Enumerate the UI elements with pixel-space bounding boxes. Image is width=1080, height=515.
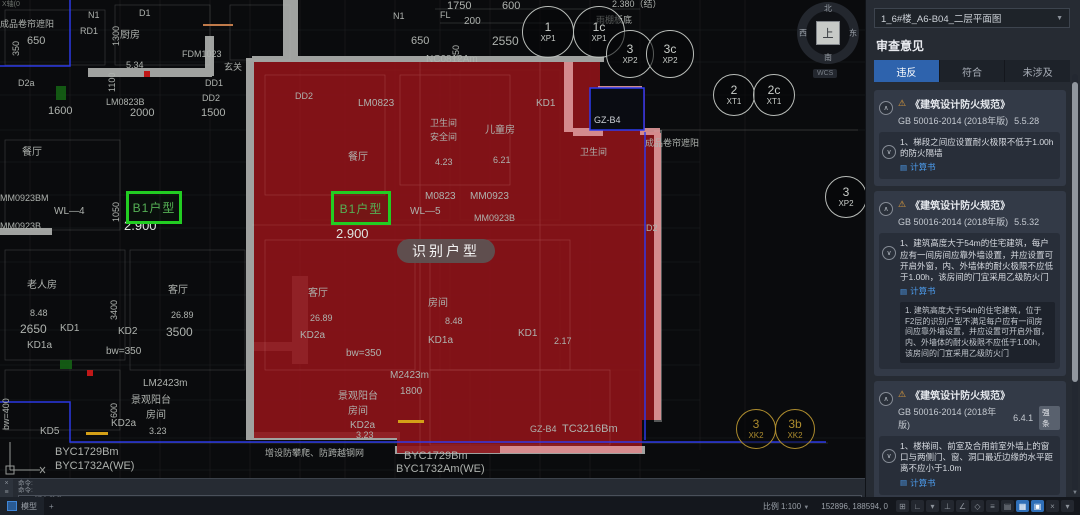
axis-bubble: 2XT1: [713, 74, 755, 116]
axis-ref: XT1: [727, 98, 742, 106]
cad-text: 客厅: [168, 286, 188, 296]
add-layout-button[interactable]: +: [44, 502, 59, 511]
violation-detail: 1. 建筑高度大于54m的住宅建筑，位于F2层的识别户型不满足每户应有一间房间应…: [900, 302, 1055, 363]
annotation-visibility-icon[interactable]: ▦: [1016, 500, 1029, 512]
cad-text: RD1: [80, 27, 98, 36]
cad-text: 1300: [112, 26, 121, 46]
violation-item: ∨1、楼梯间、前室及合用前室外墙上的窗口与两侧门、窗、洞口最近边缘的水平距离不应…: [879, 436, 1060, 495]
chevron-up-circle-icon[interactable]: ∧: [879, 202, 893, 216]
drawing-selector-value: 1_6#楼_A6-B04_二层平面图: [881, 11, 1001, 25]
snap-icon[interactable]: ∟: [911, 500, 924, 512]
standard-code-row: GB 50016-2014 (2018年版)5.5.32: [898, 215, 1060, 228]
compass-south-label: 南: [824, 52, 832, 63]
cad-viewport[interactable]: X轴(0成品卷帘遮阳650350N1RD1D1厨房5.34FDM1023玄关DD…: [0, 0, 865, 478]
review-card-header-text: ⚠《建筑设计防火规范》GB 50016-2014 (2018年版)6.4.1强条: [898, 387, 1060, 431]
cad-text: BYC1732A(WE): [55, 461, 134, 472]
cad-text: 厨房: [120, 31, 140, 41]
cad-text: BYC1729Bm: [55, 447, 119, 458]
review-card-header-text: ⚠《建筑设计防火规范》GB 50016-2014 (2018年版)5.5.28: [898, 96, 1060, 127]
violation-item: ∨1、建筑高度大于54m的住宅建筑，每户应有一间房间应靠外墙设置，并应设置可开启…: [879, 233, 1060, 369]
cursor-coordinates: 152896, 188594, 0: [821, 502, 888, 511]
lineweight-icon[interactable]: ≡: [986, 500, 999, 512]
axis-number: 1c: [593, 21, 606, 33]
close-icon[interactable]: ×: [4, 480, 8, 487]
cad-text: 安全间: [430, 133, 457, 142]
cad-text: 房间: [146, 411, 166, 421]
cad-text: MM0923B: [0, 222, 41, 231]
axis-bubble: 3XP2: [825, 176, 865, 218]
cad-text: 3400: [110, 300, 119, 320]
review-card-header[interactable]: ∧⚠《建筑设计防火规范》GB 50016-2014 (2018年版)5.5.28: [879, 96, 1060, 127]
status-toggle-group: ⊞∟▾⊥∠◇≡▤▦▣×▾: [896, 500, 1074, 512]
cad-text: N1: [88, 11, 100, 20]
review-card: ∧⚠《建筑设计防火规范》GB 50016-2014 (2018年版)5.5.28…: [874, 90, 1066, 186]
cad-text: 1750: [447, 1, 471, 12]
tools-icon[interactable]: ≡: [4, 489, 8, 496]
cad-text: 餐厅: [22, 148, 42, 158]
cad-text: 房间: [428, 299, 448, 309]
cad-text: LM0823: [358, 99, 394, 109]
calc-report-link[interactable]: 计算书: [910, 477, 936, 489]
cad-text: bw=350: [106, 347, 141, 357]
calc-report-row: ▤计算书: [900, 161, 1055, 173]
cad-text: 增设防攀爬、防跨越钢网: [265, 449, 364, 458]
model-tab-label: 模型: [21, 501, 37, 512]
cad-text: 1800: [400, 387, 422, 397]
warning-icon: ⚠: [898, 199, 906, 210]
cad-text: MM0923BM: [0, 194, 49, 203]
cad-text: 8.48: [445, 317, 463, 326]
cad-text: bw=400: [2, 398, 11, 430]
chevron-down-icon: ▼: [803, 505, 809, 511]
axis-bubble: 1XP1: [522, 6, 574, 58]
cad-text: M2423m: [390, 371, 429, 381]
standard-title-row: ⚠《建筑设计防火规范》: [898, 96, 1060, 111]
violation-text: 1、建筑高度大于54m的住宅建筑，每户应有一间房间应靠外墙设置，并应设置可开启外…: [900, 238, 1055, 283]
axis-number: 3: [627, 43, 634, 55]
chevron-up-circle-icon[interactable]: ∧: [879, 392, 893, 406]
cad-text: N1: [393, 12, 405, 21]
cad-text: DD2: [295, 92, 313, 101]
cad-text: KD1: [536, 99, 555, 109]
cad-text: DD2: [202, 94, 220, 103]
violation-item-body: 1、楼梯间、前室及合用前室外墙上的窗口与两侧门、窗、洞口最近边缘的水平距离不应小…: [900, 441, 1055, 489]
cad-text: LM2423m: [143, 379, 187, 389]
axis-ref: XP2: [662, 57, 677, 65]
ortho-icon[interactable]: ⊥: [941, 500, 954, 512]
axis-number: 3b: [788, 418, 801, 430]
cad-text: 1600: [48, 106, 72, 117]
command-history-line: 命令:: [18, 480, 862, 487]
cad-text: KD2: [118, 327, 137, 337]
standard-title: 《建筑设计防火规范》: [910, 197, 1010, 212]
recognized-unit-label: 识别户型: [397, 239, 495, 263]
cad-text: KD1a: [27, 341, 52, 351]
selection-cycling-icon[interactable]: ▤: [1001, 500, 1014, 512]
cad-text: WL—5: [410, 207, 441, 217]
chevron-up-circle-icon[interactable]: ∧: [879, 101, 893, 115]
cad-text: KD5: [40, 427, 59, 437]
review-card-header[interactable]: ∧⚠《建筑设计防火规范》GB 50016-2014 (2018年版)6.4.1强…: [879, 387, 1060, 431]
cad-text: LM0823B: [106, 98, 145, 107]
scrollbar-thumb[interactable]: [1072, 82, 1078, 382]
review-card-header-text: ⚠《建筑设计防火规范》GB 50016-2014 (2018年版)5.5.32: [898, 197, 1060, 228]
panel-scrollbar[interactable]: [1072, 74, 1078, 491]
chevron-down-circle-icon[interactable]: ∨: [882, 246, 896, 260]
calc-report-link[interactable]: 计算书: [910, 161, 936, 173]
clause-number: 5.5.32: [1014, 217, 1039, 227]
unit-type-label: B1户型: [133, 199, 176, 216]
review-panel: 1_6#楼_A6-B04_二层平面图 ▼ 审查意见 违反符合未涉及 ∧⚠《建筑设…: [865, 0, 1080, 497]
cad-text: 350: [12, 41, 21, 56]
axis-number: 3: [843, 186, 850, 198]
tab-not-involved[interactable]: 未涉及: [1005, 60, 1070, 82]
cad-text: 8.48: [30, 309, 48, 318]
cad-text: 26.89: [310, 314, 333, 323]
standard-title: 《建筑设计防火规范》: [910, 96, 1010, 111]
grid-settings-caret-icon[interactable]: ▾: [926, 500, 939, 512]
cad-text: 6.21: [493, 156, 511, 165]
cad-text: 3.23: [356, 431, 374, 440]
compass-north-label: 北: [824, 3, 832, 14]
compass-east-label: 东: [849, 28, 857, 39]
cad-text: KD1: [518, 329, 537, 339]
warning-icon: ⚠: [898, 98, 906, 109]
review-card: ∧⚠《建筑设计防火规范》GB 50016-2014 (2018年版)6.4.1强…: [874, 381, 1066, 497]
workspace-icon[interactable]: ▣: [1031, 500, 1044, 512]
cad-text: 房间: [348, 407, 368, 417]
panel-title: 审查意见: [876, 37, 1070, 54]
model-space-icon: [7, 501, 17, 511]
cad-text: 景观阳台: [338, 392, 378, 402]
axis-number: 2: [731, 84, 738, 96]
standard-title: 《建筑设计防火规范》: [910, 387, 1010, 402]
cad-text: 600: [502, 1, 520, 12]
cad-text: 2.17: [554, 337, 572, 346]
violation-text: 1、楼梯间、前室及合用前室外墙上的窗口与两侧门、窗、洞口最近边缘的水平距离不应小…: [900, 441, 1055, 475]
cad-text: 3.23: [149, 427, 167, 436]
cad-text: BYC1732Am(WE): [396, 464, 485, 475]
clause-number: 6.4.1: [1013, 413, 1033, 423]
standard-title-row: ⚠《建筑设计防火规范》: [898, 387, 1060, 402]
cad-text: MM0923B: [474, 214, 515, 223]
unit-type-box[interactable]: B1户型: [331, 191, 391, 225]
axis-number: 3c: [664, 43, 677, 55]
cad-text: FDM1023: [182, 50, 222, 59]
clause-number: 5.5.28: [1014, 116, 1039, 126]
cad-text: WL—4: [54, 207, 85, 217]
standard-code: GB 50016-2014 (2018年版): [898, 215, 1008, 228]
cad-text: 1100: [108, 73, 117, 92]
cad-text: 200: [464, 17, 481, 27]
unit-type-label: B1户型: [340, 200, 383, 217]
cad-text: MM0923: [470, 192, 509, 202]
app-window: X轴(0成品卷帘遮阳650350N1RD1D1厨房5.34FDM1023玄关DD…: [0, 0, 1080, 515]
compass-west-label: 西: [799, 28, 807, 39]
axis-ref: XK2: [787, 432, 802, 440]
axis-ref: XP2: [838, 200, 853, 208]
customize-caret-icon[interactable]: ▾: [1061, 500, 1074, 512]
calc-report-row: ▤计算书: [900, 285, 1055, 297]
cad-text: D2a: [18, 79, 35, 88]
cad-text: 650: [411, 36, 429, 47]
cad-text: 650: [27, 36, 45, 47]
cad-text: 儿童房: [485, 126, 515, 136]
chevron-down-circle-icon[interactable]: ∨: [882, 449, 896, 463]
axis-bubble: 3XK2: [736, 409, 776, 449]
standard-code: GB 50016-2014 (2018年版): [898, 405, 1007, 431]
model-tab[interactable]: 模型: [0, 497, 44, 515]
axis-number: 3: [753, 418, 760, 430]
tab-compliant[interactable]: 符合: [940, 60, 1006, 82]
review-list: ∧⚠《建筑设计防火规范》GB 50016-2014 (2018年版)5.5.28…: [874, 90, 1066, 497]
axis-bubble: 3cXP2: [646, 30, 694, 78]
cad-text: KD2a: [300, 331, 325, 341]
cad-text: 卫生间: [580, 148, 607, 157]
cad-text: 2650: [20, 323, 47, 335]
violation-item-body: 1、建筑高度大于54m的住宅建筑，每户应有一间房间应靠外墙设置，并应设置可开启外…: [900, 238, 1055, 363]
cad-text: 景观阳台: [131, 396, 171, 406]
cad-text: bw=350: [346, 349, 381, 359]
axis-ref: XP1: [591, 35, 606, 43]
cad-text: X轴(0: [2, 1, 20, 8]
cad-text: 1500: [201, 108, 225, 119]
violation-text: 1、梯段之间应设置耐火极限不低于1.00h的防火隔墙: [900, 137, 1055, 159]
grid-icon[interactable]: ⊞: [896, 500, 909, 512]
review-card-header[interactable]: ∧⚠《建筑设计防火规范》GB 50016-2014 (2018年版)5.5.32: [879, 197, 1060, 228]
view-compass[interactable]: 北 南 西 东 上: [797, 2, 859, 64]
command-bar: ×≡ 命令: 命令: ▣▾: [0, 478, 865, 497]
standard-code-row: GB 50016-2014 (2018年版)6.4.1强条: [898, 405, 1060, 431]
axis-number: 1: [545, 21, 552, 33]
axis-ref: XK2: [748, 432, 763, 440]
cad-text: D1: [139, 9, 151, 18]
cad-text: 成品卷帘遮阳: [645, 139, 699, 148]
cad-text: 2000: [130, 108, 154, 119]
mandatory-clause-badge: 强条: [1039, 406, 1060, 430]
cad-text: 餐厅: [348, 153, 368, 163]
document-icon: ▤: [900, 478, 907, 487]
cad-text: 成品卷帘遮阳: [0, 20, 54, 29]
wcs-badge[interactable]: WCS: [813, 69, 837, 78]
scale-selector[interactable]: 比例 1:100 ▼: [763, 501, 809, 512]
violation-item: ∨1、梯段之间应设置耐火极限不低于1.00h的防火隔墙▤计算书: [879, 132, 1060, 179]
cad-text: GZ-B4: [530, 425, 557, 434]
command-history: 命令: 命令: ▣▾: [13, 479, 865, 497]
axis-ref: XP1: [540, 35, 555, 43]
cad-text: TC3216Bm: [562, 424, 618, 435]
cad-text: 2.380（结）: [612, 0, 662, 9]
document-icon: ▤: [900, 163, 907, 172]
cad-text: 26.89: [171, 311, 194, 320]
tab-violation[interactable]: 违反: [874, 60, 940, 82]
cad-text: DD1: [205, 79, 223, 88]
cad-text: 玄关: [224, 63, 242, 72]
standard-title-row: ⚠《建筑设计防火规范》: [898, 197, 1060, 212]
document-icon: ▤: [900, 287, 907, 296]
command-bar-icons: ×≡: [0, 479, 13, 497]
cad-text: 2.900: [336, 227, 369, 240]
cad-text: 3500: [166, 326, 193, 338]
axis-ref: XP2: [622, 57, 637, 65]
polar-tracking-icon[interactable]: ∠: [956, 500, 969, 512]
cad-text: D2: [646, 224, 658, 233]
cad-text: 1050: [112, 202, 121, 222]
scroll-down-icon[interactable]: ▼: [1072, 490, 1078, 497]
cad-text: 老人房: [27, 281, 57, 291]
cad-text: KD1: [60, 324, 79, 334]
command-history-line: 命令:: [18, 487, 862, 494]
ucs-icon: [6, 442, 45, 474]
cad-text: 600: [110, 403, 119, 418]
cad-text: M0823: [425, 192, 456, 202]
axis-number: 2c: [768, 84, 781, 96]
cad-text: KD1a: [428, 336, 453, 346]
drawing-selector[interactable]: 1_6#楼_A6-B04_二层平面图 ▼: [874, 8, 1070, 28]
cad-text: 客厅: [308, 289, 328, 299]
cad-text: KD2a: [111, 419, 136, 429]
standard-code-row: GB 50016-2014 (2018年版)5.5.28: [898, 114, 1060, 127]
axis-ref: XT1: [767, 98, 782, 106]
unit-type-box[interactable]: B1户型: [126, 191, 182, 224]
compass-top-face[interactable]: 上: [816, 21, 840, 45]
result-tabs: 违反符合未涉及: [874, 60, 1070, 82]
calc-report-link[interactable]: 计算书: [910, 285, 936, 297]
cad-text: BYC1729Bm: [404, 451, 468, 462]
cad-text: GZ-B4: [594, 116, 621, 125]
warning-icon: ⚠: [898, 389, 906, 400]
cad-text: 卫生间: [430, 119, 457, 128]
cad-text: 5.34: [126, 61, 144, 70]
axis-bubble: 3bXK2: [775, 409, 815, 449]
calc-report-row: ▤计算书: [900, 477, 1055, 489]
review-card: ∧⚠《建筑设计防火规范》GB 50016-2014 (2018年版)5.5.32…: [874, 191, 1066, 376]
cad-text: FL: [440, 11, 451, 20]
clean-screen-icon[interactable]: ×: [1046, 500, 1059, 512]
osnap-icon[interactable]: ◇: [971, 500, 984, 512]
standard-code: GB 50016-2014 (2018年版): [898, 114, 1008, 127]
cad-text: 2550: [492, 35, 519, 47]
chevron-down-icon: ▼: [1056, 15, 1063, 22]
chevron-down-circle-icon[interactable]: ∨: [882, 145, 896, 159]
status-bar: 模型 + 比例 1:100 ▼ 152896, 188594, 0 ⊞∟▾⊥∠◇…: [0, 497, 1080, 515]
axis-bubble: 2cXT1: [753, 74, 795, 116]
cad-text: 4.23: [435, 158, 453, 167]
cad-text: NC0812Am: [426, 55, 478, 65]
violation-item-body: 1、梯段之间应设置耐火极限不低于1.00h的防火隔墙▤计算书: [900, 137, 1055, 173]
